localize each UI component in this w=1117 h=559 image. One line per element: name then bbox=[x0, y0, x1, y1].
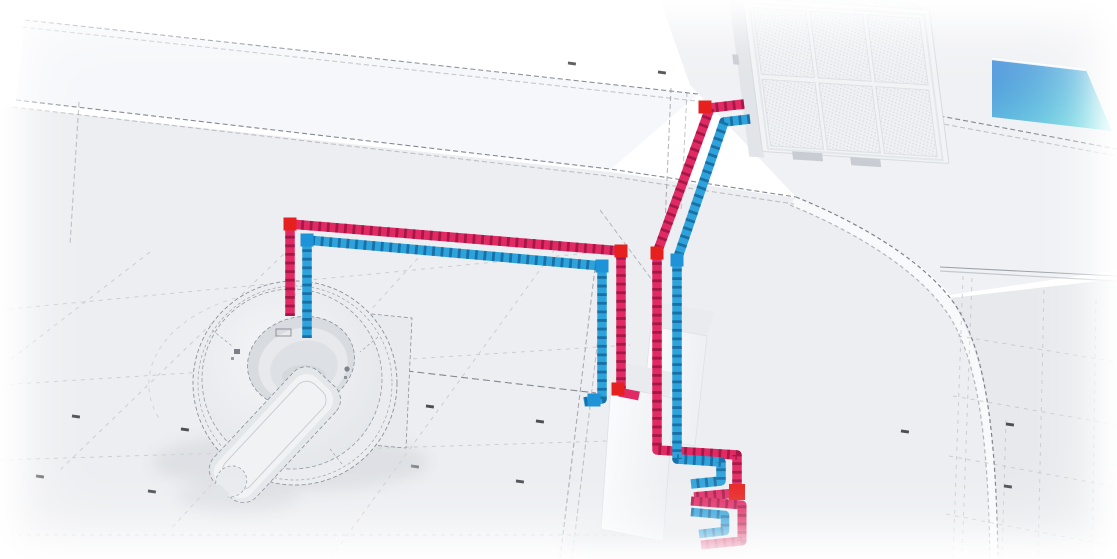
lower-box-front bbox=[601, 386, 674, 541]
cold-pipe-elbow bbox=[671, 254, 684, 267]
condenser-mesh-panel bbox=[819, 83, 880, 153]
hot-pipe-elbow bbox=[284, 218, 297, 231]
condenser-mesh-panel bbox=[762, 79, 823, 149]
hot-pipe-elbow bbox=[651, 247, 664, 260]
cold-pipe-elbow bbox=[301, 234, 314, 247]
tick-mark bbox=[658, 70, 666, 74]
condenser-mesh-panel bbox=[810, 11, 871, 81]
hot-pipe-elbow bbox=[615, 245, 628, 258]
cold-pipe-elbow bbox=[588, 394, 601, 407]
illustration-stage bbox=[0, 0, 1117, 559]
condenser-unit bbox=[722, 0, 950, 172]
cold-pipe-elbow bbox=[596, 260, 609, 273]
condenser-mesh-panel bbox=[753, 8, 814, 78]
condenser-mesh-panel bbox=[867, 15, 928, 85]
hot-pipe-elbow bbox=[699, 101, 712, 114]
condenser-mesh-panel bbox=[876, 87, 937, 157]
scene-illustration bbox=[0, 0, 1117, 559]
hot-pipe-elbow bbox=[612, 383, 625, 396]
tick-mark bbox=[568, 61, 576, 65]
hot-pipe-elbow bbox=[729, 484, 745, 500]
